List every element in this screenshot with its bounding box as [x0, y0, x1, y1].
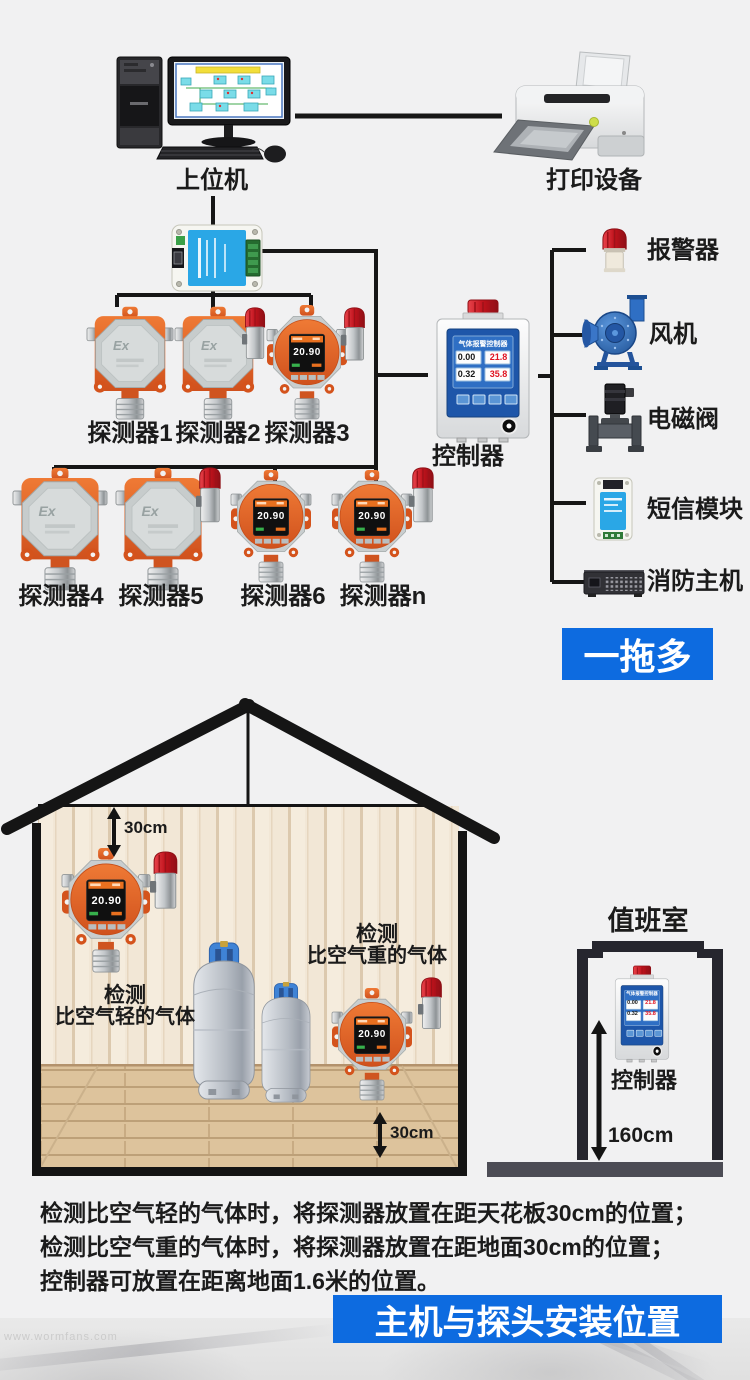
detector-6-readout: 20.90 — [253, 511, 289, 522]
sms-module-icon — [594, 478, 632, 540]
detector-4-label: 探测器4 — [6, 583, 116, 611]
ex-marking-1: Ex — [103, 338, 139, 353]
detector-n-readout: 20.90 — [354, 511, 390, 522]
duty-room-outline — [487, 941, 723, 1177]
heavy-gas-note-line1: 检测 — [317, 923, 437, 947]
detector-n-label: 探测器n — [328, 583, 438, 611]
controller-reading-1: 0.00 — [454, 351, 479, 364]
beacon-detector-n-icon — [409, 468, 433, 522]
detector-3-icon — [267, 305, 347, 419]
one-to-many-banner: 一拖多 — [562, 628, 713, 680]
fire-host-label: 消防主机 — [647, 568, 743, 596]
duty-controller-screen-title: 气体报警控制器 — [626, 991, 658, 997]
solenoid-valve-icon — [586, 384, 644, 452]
footer-note-line2: 检测比空气重的气体时，将探测器放置在距地面30cm的位置； — [40, 1234, 674, 1260]
controller-reading-2: 21.8 — [486, 351, 511, 364]
duty-controller-label: 控制器 — [592, 1068, 696, 1093]
light-gas-note-line1: 检测 — [65, 984, 185, 1008]
gas-alarm-infographic: 上位机 打印设备 探测器1 探测器2 探测器3 控制器 探测器4 探测器5 探测… — [0, 0, 750, 1380]
detector-3-label: 探测器3 — [252, 420, 362, 448]
fire-host-icon — [584, 570, 644, 597]
duty-reading-3: 0.32 — [625, 1010, 640, 1019]
diagram-canvas — [0, 0, 750, 1380]
clearance-top-label: 30cm — [124, 818, 167, 838]
clearance-bottom-label: 30cm — [390, 1123, 433, 1143]
install-position-banner: 主机与探头安装位置 — [333, 1295, 722, 1343]
fan-icon — [582, 295, 647, 370]
signal-converter-icon — [172, 225, 262, 291]
duty-room-title: 值班室 — [583, 906, 713, 937]
detector-5-label: 探测器5 — [106, 583, 216, 611]
host-computer-icon — [117, 57, 290, 163]
duty-controller-icon — [615, 966, 669, 1062]
ex-marking-5: Ex — [131, 503, 169, 519]
printer-icon — [494, 52, 644, 160]
duty-reading-1: 0.00 — [625, 999, 640, 1008]
controller-icon — [437, 300, 529, 442]
ex-marking-4: Ex — [28, 503, 66, 519]
ex-marking-2: Ex — [191, 338, 227, 353]
detector-3-readout: 20.90 — [289, 347, 325, 358]
controller-label: 控制器 — [413, 443, 523, 471]
ceiling-detector-readout: 20.90 — [87, 895, 126, 907]
watermark: www.wormfans.com — [4, 1331, 118, 1343]
controller-screen-title: 气体报警控制器 — [456, 339, 510, 349]
heavy-gas-note-line2: 比空气重的气体 — [307, 945, 447, 968]
detector-6-label: 探测器6 — [228, 583, 338, 611]
printer-label: 打印设备 — [536, 167, 652, 195]
duty-reading-4: 35.8 — [643, 1010, 658, 1019]
controller-reading-4: 35.8 — [486, 368, 511, 381]
alarm-beacon-icon — [603, 229, 626, 272]
footer-note-line1: 检测比空气轻的气体时，将探测器放置在距天花板30cm的位置； — [40, 1200, 697, 1226]
detector-n-icon — [332, 470, 412, 582]
detector-5-icon — [116, 468, 210, 590]
alarm-beacon-label: 报警器 — [647, 237, 719, 265]
controller-reading-3: 0.32 — [454, 368, 479, 381]
fan-label: 风机 — [649, 321, 697, 349]
duty-reading-2: 21.8 — [643, 999, 658, 1008]
light-gas-note-line2: 比空气轻的气体 — [50, 1006, 200, 1029]
floor-detector-readout: 20.90 — [354, 1029, 390, 1040]
footer-note-line3: 控制器可放置在距离地面1.6米的位置。 — [40, 1268, 440, 1294]
sms-module-label: 短信模块 — [647, 496, 743, 524]
host-computer-label: 上位机 — [157, 167, 267, 195]
detector-1-icon — [87, 307, 173, 419]
solenoid-valve-label: 电磁阀 — [647, 406, 719, 434]
detector-6-icon — [231, 470, 311, 582]
detector-4-icon — [13, 468, 107, 590]
height-160cm-label: 160cm — [608, 1124, 673, 1148]
